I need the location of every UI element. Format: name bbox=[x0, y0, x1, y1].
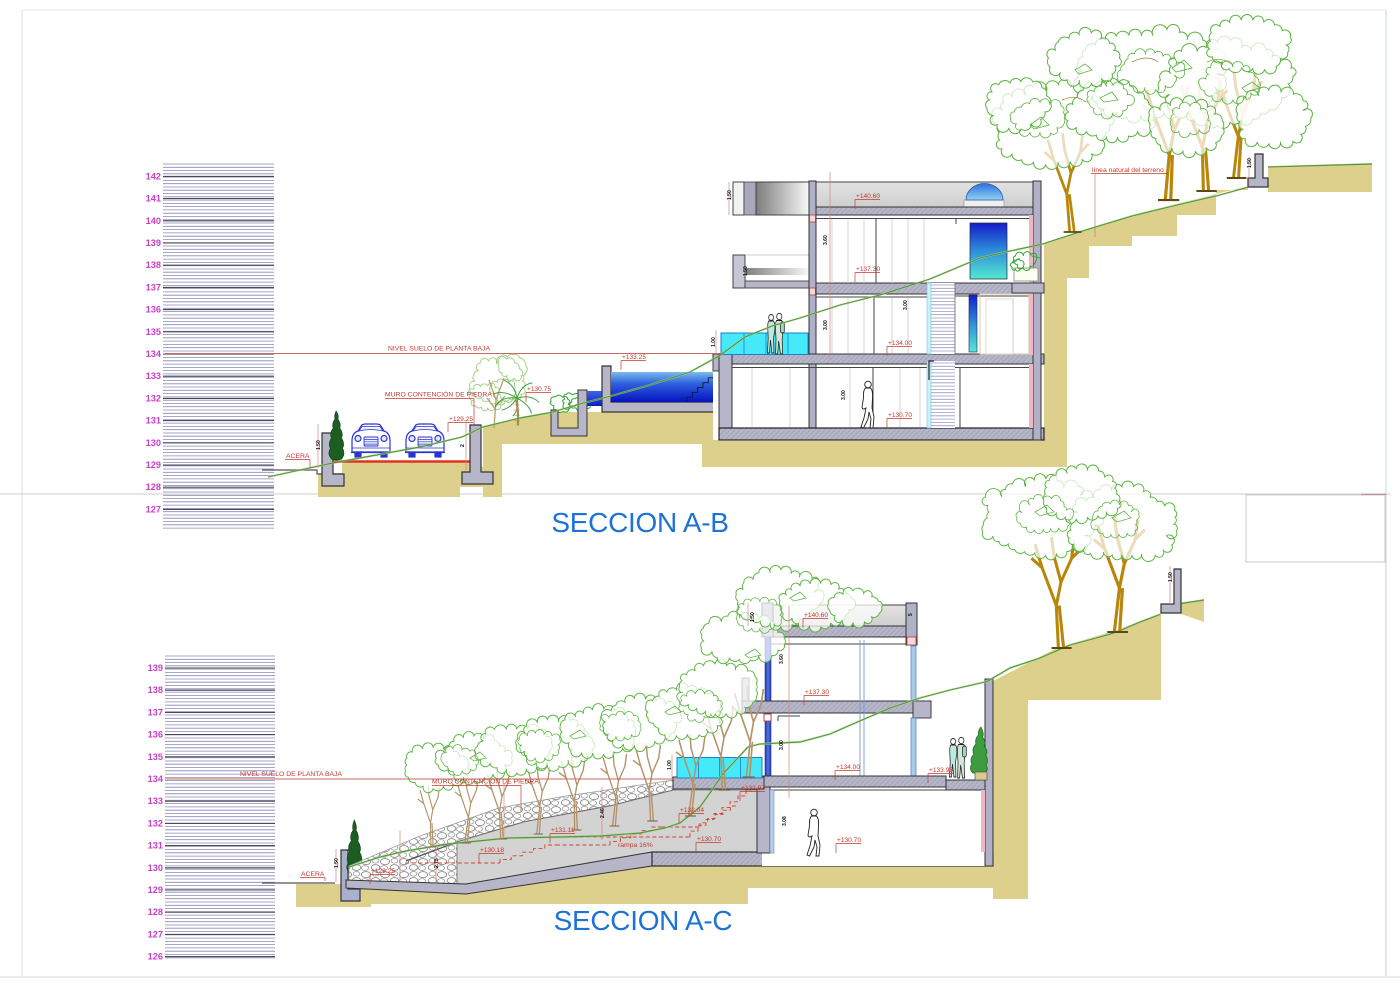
svg-text:NIVEL SUELO DE PLANTA BAJA: NIVEL SUELO DE PLANTA BAJA bbox=[388, 346, 490, 353]
svg-text:+140.60: +140.60 bbox=[804, 612, 828, 619]
svg-text:1.50: 1.50 bbox=[316, 440, 322, 450]
svg-text:SECCION A-B: SECCION A-B bbox=[551, 507, 728, 538]
svg-text:1.00: 1.00 bbox=[711, 337, 717, 347]
svg-text:+133.25: +133.25 bbox=[622, 354, 646, 361]
svg-text:3.60: 3.60 bbox=[823, 235, 829, 245]
svg-text:134: 134 bbox=[146, 349, 162, 359]
svg-text:+131.11: +131.11 bbox=[551, 827, 575, 834]
svg-text:141: 141 bbox=[146, 194, 161, 204]
svg-text:3.60: 3.60 bbox=[779, 654, 785, 664]
svg-text:1.50: 1.50 bbox=[743, 266, 749, 276]
svg-text:139: 139 bbox=[148, 663, 163, 673]
svg-text:+133.95: +133.95 bbox=[929, 767, 953, 774]
svg-text:MURO CONTENCIÓN DE PIEDRA: MURO CONTENCIÓN DE PIEDRA bbox=[385, 390, 492, 399]
svg-text:137: 137 bbox=[146, 282, 161, 292]
svg-text:135: 135 bbox=[148, 752, 163, 762]
svg-text:+130.75: +130.75 bbox=[527, 386, 551, 393]
svg-text:+137.30: +137.30 bbox=[856, 266, 880, 273]
svg-text:130: 130 bbox=[146, 438, 161, 448]
svg-text:131: 131 bbox=[146, 416, 161, 426]
svg-text:130: 130 bbox=[148, 863, 163, 873]
svg-text:+132.04: +132.04 bbox=[680, 807, 704, 814]
svg-text:+130.70: +130.70 bbox=[888, 412, 912, 419]
svg-text:+137.30: +137.30 bbox=[805, 689, 829, 696]
svg-text:2.46: 2.46 bbox=[600, 808, 606, 818]
svg-text:1.50: 1.50 bbox=[1168, 572, 1174, 582]
svg-text:136: 136 bbox=[146, 305, 161, 315]
svg-text:142: 142 bbox=[146, 171, 161, 181]
svg-text:+132.97: +132.97 bbox=[741, 785, 765, 792]
svg-text:3.00: 3.00 bbox=[823, 320, 829, 330]
svg-text:133: 133 bbox=[146, 371, 161, 381]
svg-text:1.50: 1.50 bbox=[727, 190, 733, 200]
svg-text:131: 131 bbox=[148, 841, 163, 851]
svg-text:127: 127 bbox=[148, 929, 163, 939]
svg-text:1.50: 1.50 bbox=[334, 858, 340, 868]
svg-text:5: 5 bbox=[908, 613, 914, 616]
svg-text:3.00: 3.00 bbox=[903, 300, 909, 310]
svg-text:138: 138 bbox=[146, 260, 161, 270]
svg-text:132: 132 bbox=[146, 393, 161, 403]
svg-text:128: 128 bbox=[148, 907, 163, 917]
svg-text:3.08: 3.08 bbox=[782, 816, 788, 826]
svg-text:+130.70: +130.70 bbox=[837, 837, 861, 844]
svg-text:1.50: 1.50 bbox=[1247, 158, 1253, 168]
svg-text:126: 126 bbox=[148, 952, 163, 962]
svg-text:1.50: 1.50 bbox=[750, 612, 756, 622]
svg-text:132: 132 bbox=[148, 818, 163, 828]
svg-text:139: 139 bbox=[146, 238, 161, 248]
svg-text:NIVEL SUELO DE PLANTA BAJA: NIVEL SUELO DE PLANTA BAJA bbox=[240, 771, 342, 778]
svg-text:135: 135 bbox=[146, 327, 161, 337]
svg-text:129: 129 bbox=[146, 460, 161, 470]
svg-text:línea natural del terreno: línea natural del terreno bbox=[1092, 167, 1164, 174]
svg-text:ACERA: ACERA bbox=[286, 453, 310, 460]
svg-text:+130.70: +130.70 bbox=[697, 836, 721, 843]
svg-text:136: 136 bbox=[148, 730, 163, 740]
svg-text:+129.25: +129.25 bbox=[371, 868, 395, 875]
svg-text:+134.00: +134.00 bbox=[888, 340, 912, 347]
svg-text:+134.00: +134.00 bbox=[836, 764, 860, 771]
svg-text:1.00: 1.00 bbox=[667, 760, 673, 770]
svg-text:SECCION A-C: SECCION A-C bbox=[554, 905, 733, 936]
svg-text:128: 128 bbox=[146, 482, 161, 492]
svg-text:138: 138 bbox=[148, 685, 163, 695]
svg-text:3.00: 3.00 bbox=[841, 390, 847, 400]
svg-text:133: 133 bbox=[148, 796, 163, 806]
svg-text:127: 127 bbox=[146, 504, 161, 514]
svg-text:2: 2 bbox=[460, 444, 466, 447]
svg-text:+130.18: +130.18 bbox=[480, 847, 504, 854]
svg-text:3.00: 3.00 bbox=[779, 740, 785, 750]
svg-text:rampa 16%: rampa 16% bbox=[618, 842, 653, 849]
svg-text:ACERA: ACERA bbox=[301, 871, 325, 878]
svg-text:140: 140 bbox=[146, 216, 161, 226]
svg-text:134: 134 bbox=[148, 774, 164, 784]
svg-text:+140.60: +140.60 bbox=[856, 193, 880, 200]
svg-text:+129.25: +129.25 bbox=[449, 416, 473, 423]
svg-text:2.75: 2.75 bbox=[434, 858, 440, 868]
svg-text:MURO CONTENCIÓN DE PIEDRA: MURO CONTENCIÓN DE PIEDRA bbox=[432, 777, 539, 786]
svg-text:137: 137 bbox=[148, 707, 163, 717]
svg-text:129: 129 bbox=[148, 885, 163, 895]
